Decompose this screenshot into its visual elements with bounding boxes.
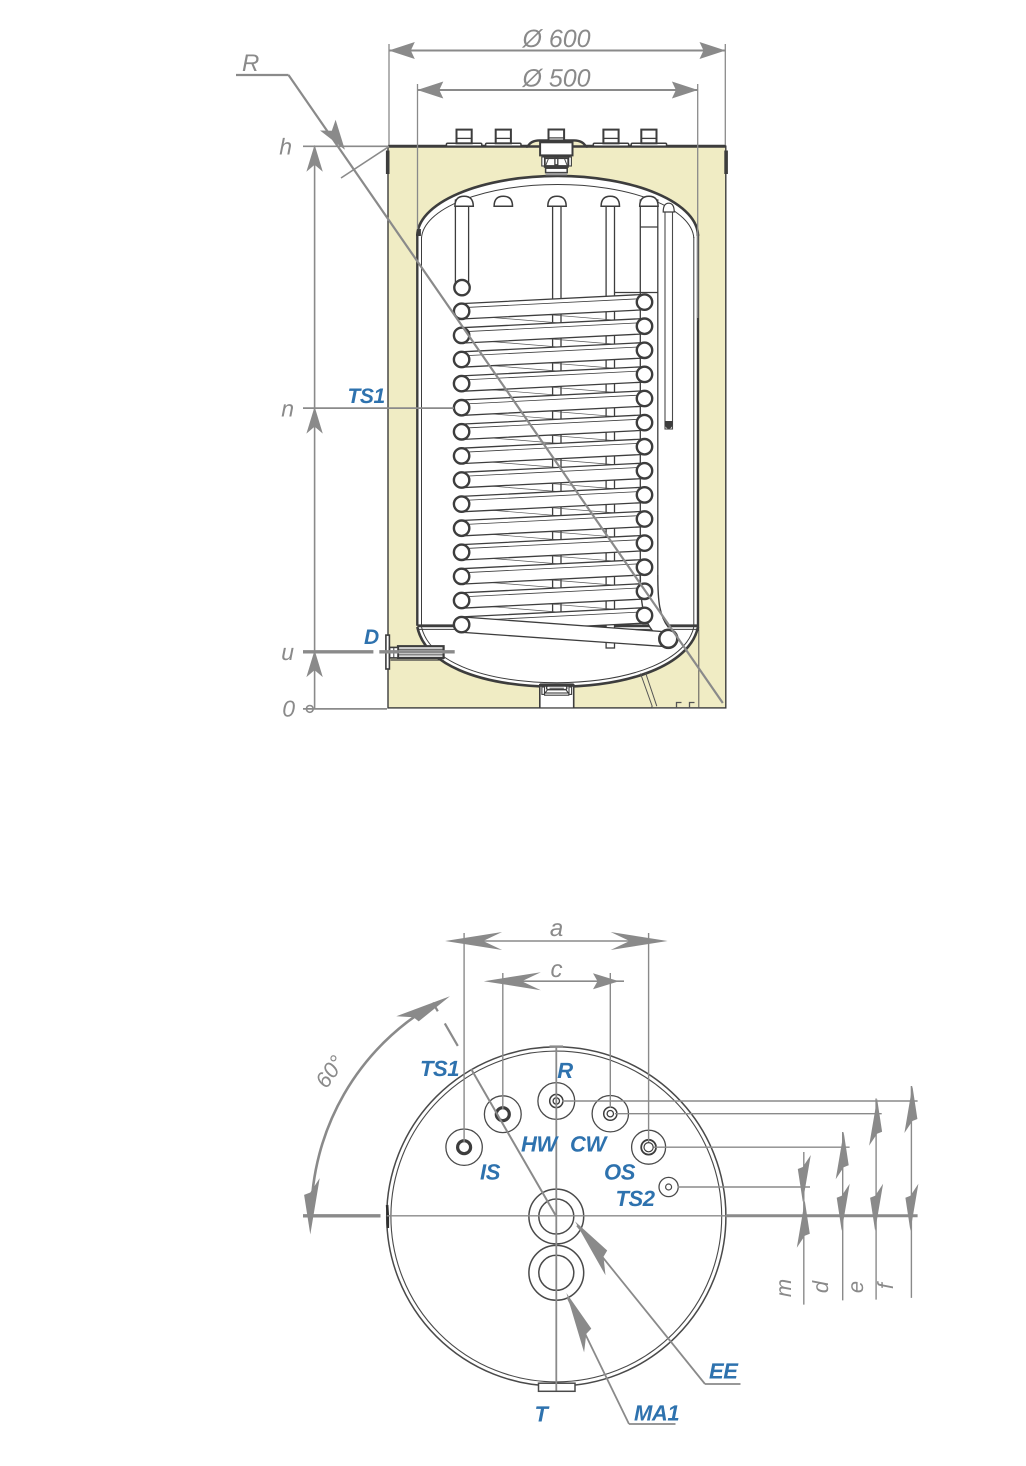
svg-text:R: R <box>242 50 259 77</box>
svg-text:Ø 600: Ø 600 <box>521 25 590 53</box>
svg-text:u: u <box>281 639 294 665</box>
svg-text:d: d <box>808 1280 833 1293</box>
svg-text:0: 0 <box>282 696 295 722</box>
svg-text:HW: HW <box>521 1132 559 1157</box>
svg-text:c: c <box>551 956 563 983</box>
svg-text:TS1: TS1 <box>420 1056 459 1081</box>
svg-text:D: D <box>364 626 379 649</box>
svg-text:T: T <box>534 1402 549 1427</box>
svg-text:OS: OS <box>604 1160 636 1185</box>
svg-text:TS1: TS1 <box>348 385 385 408</box>
svg-text:MA1: MA1 <box>634 1401 679 1426</box>
svg-text:a: a <box>550 915 563 942</box>
svg-text:CW: CW <box>570 1132 608 1157</box>
svg-text:n: n <box>281 396 294 422</box>
svg-text:h: h <box>279 134 292 160</box>
svg-text:R: R <box>557 1058 573 1083</box>
svg-text:m: m <box>771 1279 796 1297</box>
svg-text:e: e <box>843 1281 868 1293</box>
svg-text:EE: EE <box>709 1359 739 1384</box>
svg-text:Ø 500: Ø 500 <box>521 65 590 93</box>
svg-text:IS: IS <box>480 1160 501 1185</box>
svg-text:TS2: TS2 <box>616 1186 656 1211</box>
svg-text:60°: 60° <box>310 1051 350 1093</box>
